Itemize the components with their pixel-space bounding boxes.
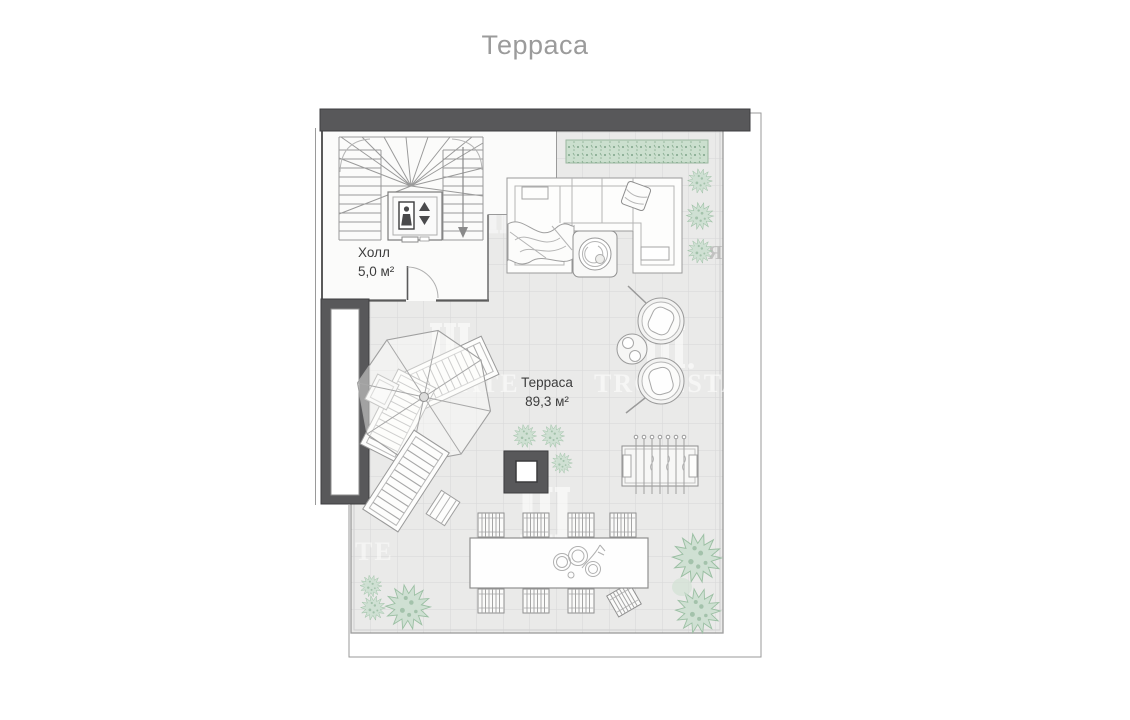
hall-area-label: 5,0 м² bbox=[358, 264, 395, 279]
elevator bbox=[388, 192, 442, 242]
hedge-planter bbox=[566, 140, 708, 163]
chimney-shaft bbox=[504, 451, 548, 493]
parasol-pole bbox=[420, 393, 429, 402]
elevator-door bbox=[402, 237, 418, 242]
terrace-name-label: Терраса bbox=[521, 375, 573, 390]
sofa bbox=[507, 178, 682, 277]
watermark-text: TE bbox=[355, 537, 394, 566]
dining-chair bbox=[568, 589, 594, 613]
floor-plan-svg: TRO ESTA ATE TE Я bbox=[0, 0, 1130, 720]
plant bbox=[672, 578, 692, 596]
elevator-door bbox=[420, 237, 429, 241]
side-table bbox=[617, 334, 647, 364]
dining-chair bbox=[568, 513, 594, 537]
hall-name-label: Холл bbox=[358, 245, 390, 260]
grill-handle bbox=[689, 455, 697, 477]
coffee-table bbox=[573, 231, 617, 277]
terrace-area-label: 89,3 м² bbox=[525, 394, 569, 409]
grill-handle bbox=[623, 455, 631, 477]
dining-chair bbox=[478, 589, 504, 613]
dining-chair bbox=[610, 513, 636, 537]
sofa-tray bbox=[641, 247, 669, 260]
top-wall bbox=[320, 109, 750, 131]
dining-chair bbox=[523, 589, 549, 613]
elevator-person-icon bbox=[399, 202, 414, 229]
floor-plan-page: Терраса bbox=[0, 0, 1130, 720]
watermark-text: Я bbox=[708, 242, 723, 264]
dining-table bbox=[470, 538, 648, 588]
dining-chair bbox=[523, 513, 549, 537]
dining-chair bbox=[478, 513, 504, 537]
